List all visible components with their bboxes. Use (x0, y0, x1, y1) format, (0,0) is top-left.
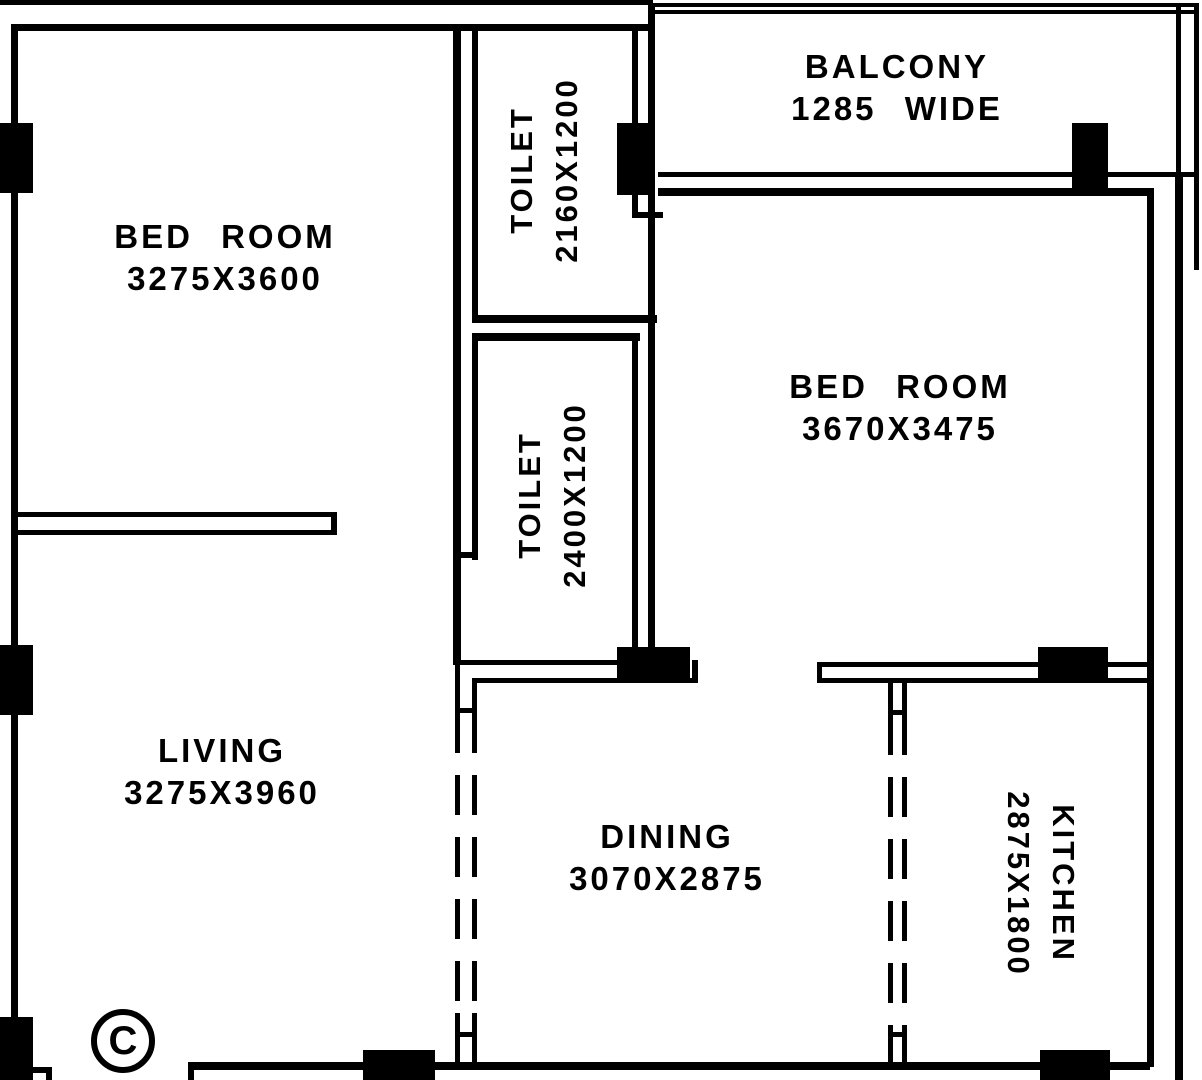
toilet2-bottom-wall-cap (692, 660, 698, 683)
entry-marker-circle: C (91, 1009, 155, 1073)
balcony-label: BALCONY 1285 WIDE (791, 46, 1003, 130)
ld-partition-dashed-left (455, 713, 460, 1013)
dk-partition-dashed-right (902, 715, 907, 1028)
kitchen-name: KITCHEN (1040, 791, 1085, 977)
dk-partition-dashed-left (888, 715, 893, 1028)
ld-partition-bottom-crossbar (455, 1032, 477, 1037)
right-inner-wall (1147, 188, 1154, 1067)
balcony-railing-top-inner (648, 10, 1199, 14)
bedroom1-size: 3275X3600 (114, 258, 336, 300)
bedroom1-name: BED ROOM (114, 216, 336, 258)
kitchen-size: 2875X1800 (995, 791, 1040, 977)
toilet2-bottom-wall-upper (455, 660, 617, 665)
bedroom2-door-block (1038, 647, 1108, 680)
bedroom1-living-partition (11, 512, 337, 535)
bedroom2-size: 3670X3475 (789, 408, 1011, 450)
toilet2-label: TOILET 2400X1200 (508, 402, 598, 588)
living-size: 3275X3960 (124, 772, 320, 814)
living-name: LIVING (124, 730, 320, 772)
balcony-railing-right-inner (1176, 3, 1181, 177)
bedroom1-label: BED ROOM 3275X3600 (114, 216, 336, 300)
ld-partition-dashed-right (472, 713, 477, 1013)
toilet1-label: TOILET 2160X1200 (500, 77, 590, 263)
entry-marker-letter: C (109, 1021, 138, 1061)
balcony-size: 1285 WIDE (791, 88, 1003, 130)
kitchen-south-block (1040, 1050, 1110, 1080)
entry-stub-vertical (46, 1067, 52, 1080)
outer-top-line (0, 0, 653, 5)
dining-south-block (363, 1050, 435, 1080)
toilet2-left-stub (453, 552, 478, 558)
toilet1-inner-right-wall (632, 31, 638, 123)
toilet1-left-wall (472, 27, 478, 315)
dk-partition-bottom-crossbar (888, 1032, 907, 1037)
toilet1-window-block (617, 123, 655, 195)
bedroom1-window-block (0, 123, 33, 193)
toilet1-bottom-wall (472, 315, 657, 323)
toilet2-door-block (617, 647, 690, 680)
toilet1-name: TOILET (500, 77, 545, 263)
toilet1-size: 2160X1200 (545, 77, 590, 263)
right-outer-wall (1175, 177, 1183, 1080)
bottom-wall (188, 1062, 1150, 1070)
living-label: LIVING 3275X3960 (124, 730, 320, 814)
balcony-railing-right-outer (1194, 3, 1199, 270)
left-bottom-corner-block (0, 1017, 33, 1080)
toilet-outer-right-wall (648, 5, 655, 647)
bedroom1-right-wall (453, 24, 461, 665)
living-window-block (0, 645, 33, 715)
balcony-railing-top-outer (648, 3, 1199, 7)
toilet2-top-wall (472, 333, 640, 341)
toilet2-size: 2400X1200 (553, 402, 598, 588)
kitchen-label: KITCHEN 2875X1800 (995, 791, 1085, 977)
toilet2-left-wall (472, 341, 478, 560)
dining-size: 3070X2875 (569, 858, 765, 900)
ld-partition-solid-bottom-right (472, 1013, 477, 1067)
ld-partition-solid-top-left (455, 665, 460, 713)
toilet2-inner-right-wall (632, 341, 638, 647)
top-wall (11, 24, 653, 31)
balcony-name: BALCONY (791, 46, 1003, 88)
bedroom2-label: BED ROOM 3670X3475 (789, 366, 1011, 450)
toilet2-name: TOILET (508, 402, 553, 588)
bedroom2-name: BED ROOM (789, 366, 1011, 408)
dining-label: DINING 3070X2875 (569, 816, 765, 900)
ld-partition-solid-bottom-left (455, 1013, 460, 1067)
bottom-wall-left-cap (188, 1062, 194, 1080)
floor-plan: BED ROOM 3275X3600 BALCONY 1285 WIDE BED… (0, 0, 1202, 1080)
balcony-floor-line (658, 172, 1199, 177)
balcony-door-block (1072, 123, 1108, 195)
dining-name: DINING (569, 816, 765, 858)
